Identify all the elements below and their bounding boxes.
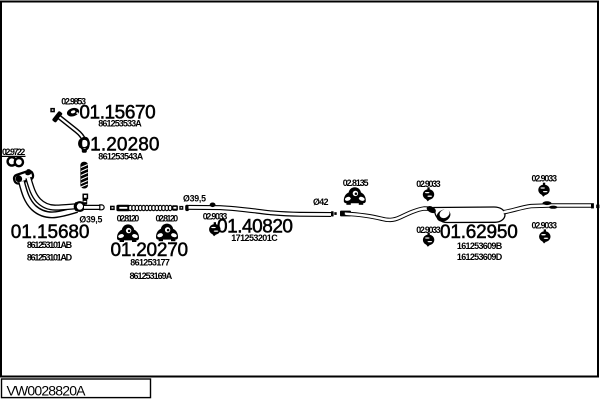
svg-text:02.8120: 02.8120	[117, 213, 140, 223]
svg-text:861253101AB: 861253101AB	[27, 240, 73, 250]
svg-text:02.8135: 02.8135	[343, 178, 369, 188]
svg-text:861253101AD: 861253101AD	[27, 252, 73, 262]
svg-text:Ø39,5: Ø39,5	[183, 194, 206, 204]
svg-text:171253201C: 171253201C	[231, 233, 278, 243]
svg-text:861253533A: 861253533A	[98, 118, 142, 128]
svg-text:VW0028820A: VW0028820A	[7, 382, 87, 398]
svg-text:161253609B: 161253609B	[457, 241, 503, 251]
svg-text:02.8120: 02.8120	[156, 213, 179, 223]
svg-text:02.9033: 02.9033	[532, 220, 558, 230]
svg-text:861253169A: 861253169A	[130, 271, 173, 281]
svg-text:861253177: 861253177	[130, 258, 170, 268]
svg-text:161253609D: 161253609D	[457, 252, 503, 262]
svg-text:861253543A: 861253543A	[98, 152, 144, 162]
svg-text:02.9722: 02.9722	[2, 147, 25, 157]
svg-text:Ø42: Ø42	[313, 197, 329, 207]
svg-text:02.9033: 02.9033	[532, 174, 558, 184]
